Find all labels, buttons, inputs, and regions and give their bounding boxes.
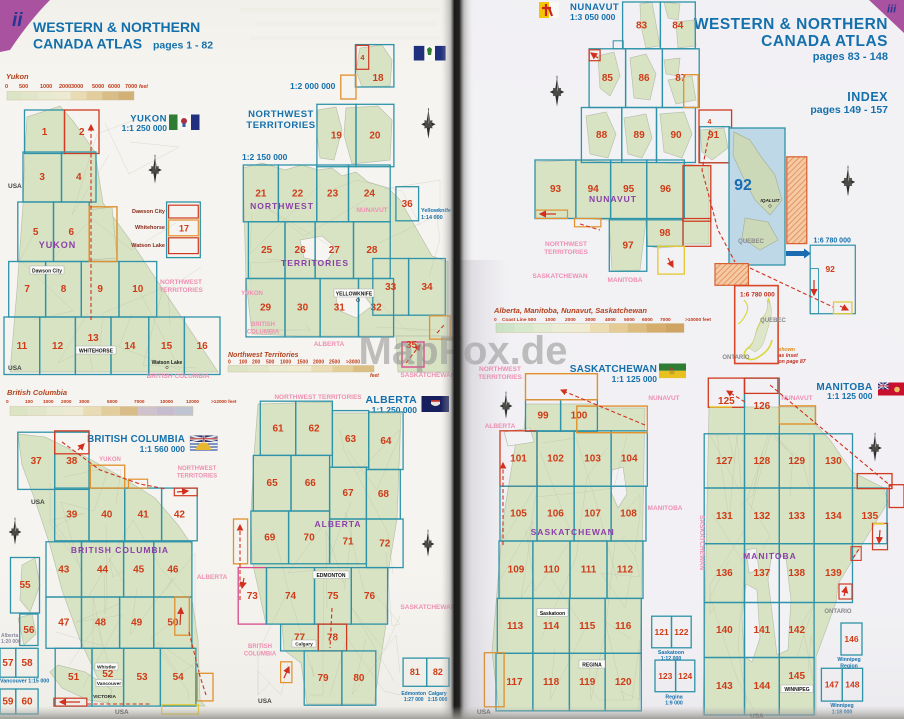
svg-text:ii: ii [12, 10, 23, 31]
svg-text:ONTARIO: ONTARIO [722, 355, 750, 361]
svg-text:109: 109 [508, 565, 525, 576]
svg-text:147: 147 [825, 680, 839, 690]
svg-text:105: 105 [510, 509, 527, 520]
svg-text:NUNAVUT: NUNAVUT [648, 395, 679, 402]
svg-text:on page 87: on page 87 [779, 359, 807, 365]
svg-text:38: 38 [66, 456, 78, 467]
svg-text:2000: 2000 [565, 317, 576, 323]
svg-text:MANITOBA: MANITOBA [648, 505, 683, 512]
svg-text:500: 500 [528, 317, 536, 323]
svg-text:134: 134 [825, 511, 842, 522]
svg-text:200: 200 [252, 360, 261, 366]
svg-text:76: 76 [364, 591, 376, 602]
svg-text:3: 3 [39, 172, 45, 183]
svg-text:MANITOBA: MANITOBA [743, 551, 797, 561]
svg-text:56: 56 [23, 625, 35, 636]
svg-text:74: 74 [285, 591, 297, 602]
svg-text:81: 81 [410, 667, 420, 677]
svg-text:5000: 5000 [92, 84, 104, 90]
svg-text:19: 19 [331, 131, 343, 142]
svg-text:2500: 2500 [329, 360, 340, 366]
svg-text:2000: 2000 [59, 84, 71, 90]
svg-text:72: 72 [379, 538, 391, 549]
svg-text:122: 122 [674, 627, 688, 637]
svg-text:Region: Region [840, 664, 858, 670]
svg-text:1:1 125 000: 1:1 125 000 [612, 374, 658, 384]
svg-text:69: 69 [264, 532, 276, 543]
svg-text:140: 140 [716, 625, 733, 636]
svg-text:QUEBEC: QUEBEC [738, 239, 764, 245]
svg-text:IQALUIT: IQALUIT [760, 198, 780, 204]
svg-text:39: 39 [66, 510, 78, 521]
svg-text:89: 89 [634, 130, 646, 141]
svg-text:29: 29 [260, 303, 272, 314]
svg-text:21: 21 [255, 188, 267, 199]
svg-text:57: 57 [2, 658, 14, 669]
svg-text:62: 62 [308, 423, 320, 434]
svg-text:2000: 2000 [313, 360, 324, 366]
svg-text:6000: 6000 [642, 317, 653, 323]
svg-text:100: 100 [239, 360, 248, 366]
svg-text:7000: 7000 [134, 399, 145, 404]
svg-text:3000: 3000 [71, 84, 83, 90]
svg-text:4: 4 [707, 119, 711, 126]
svg-text:133: 133 [788, 511, 805, 522]
svg-text:44: 44 [97, 564, 109, 575]
svg-text:NORTHWEST: NORTHWEST [178, 466, 217, 472]
svg-text:125: 125 [718, 396, 735, 407]
svg-text:50: 50 [167, 618, 179, 629]
svg-text:42: 42 [174, 510, 186, 521]
svg-text:131: 131 [716, 511, 733, 522]
svg-text:4000: 4000 [605, 317, 616, 323]
svg-text:SASKATCHEWAN: SASKATCHEWAN [531, 527, 615, 537]
svg-text:MANITOBA: MANITOBA [608, 277, 643, 284]
svg-text:15: 15 [161, 341, 173, 352]
svg-text:BRITISH COLUMBIA: BRITISH COLUMBIA [71, 545, 169, 555]
svg-text:130: 130 [825, 456, 842, 467]
svg-text:EDMONTON: EDMONTON [316, 573, 345, 579]
svg-text:67: 67 [342, 488, 354, 499]
svg-text:64: 64 [380, 436, 392, 447]
svg-text:TERRITORIES: TERRITORIES [246, 120, 315, 131]
svg-text:86: 86 [638, 73, 650, 84]
svg-text:75: 75 [327, 591, 339, 602]
svg-text:90: 90 [670, 130, 682, 141]
svg-text:1:1 560 000: 1:1 560 000 [140, 444, 186, 454]
svg-text:TERRITORIES: TERRITORIES [159, 287, 203, 294]
svg-text:31: 31 [334, 303, 346, 314]
svg-text:128: 128 [754, 456, 771, 467]
svg-text:6: 6 [69, 227, 75, 238]
svg-text:114: 114 [543, 621, 560, 632]
svg-text:65: 65 [267, 478, 279, 489]
svg-text:1:1 250 000: 1:1 250 000 [122, 123, 168, 133]
svg-text:137: 137 [754, 568, 771, 579]
svg-text:46: 46 [167, 564, 179, 575]
svg-text:NUNAVUT: NUNAVUT [589, 194, 637, 204]
svg-text:BRITISH COLUMBIA: BRITISH COLUMBIA [147, 373, 210, 380]
svg-text:Calgary: Calgary [295, 642, 313, 648]
svg-text:SASKATCHEWAN: SASKATCHEWAN [698, 515, 705, 570]
svg-text:Alberta, Manitoba, Nunavut, Sa: Alberta, Manitoba, Nunavut, Saskatchewan [493, 306, 647, 315]
svg-text:85: 85 [602, 73, 614, 84]
svg-text:26: 26 [295, 245, 307, 256]
svg-text:12000: 12000 [186, 399, 199, 404]
svg-text:88: 88 [596, 130, 608, 141]
svg-text:63: 63 [345, 434, 357, 445]
svg-text:127: 127 [716, 456, 733, 467]
svg-text:1:2 000 000: 1:2 000 000 [290, 81, 336, 91]
svg-text:USA: USA [8, 365, 22, 372]
svg-text:TERRITORIES: TERRITORIES [544, 249, 588, 256]
svg-text:NORTHWEST: NORTHWEST [545, 241, 587, 248]
svg-text:43: 43 [58, 564, 70, 575]
svg-text:98: 98 [659, 228, 671, 239]
svg-text:7000: 7000 [660, 317, 671, 323]
svg-text:132: 132 [754, 511, 771, 522]
svg-text:3000: 3000 [585, 317, 596, 323]
svg-text:48: 48 [95, 618, 107, 629]
svg-text:9: 9 [97, 284, 103, 295]
svg-text:143: 143 [716, 681, 733, 692]
svg-text:TERRITORIES: TERRITORIES [281, 258, 349, 268]
svg-text:108: 108 [620, 509, 637, 520]
svg-text:Vancouver 1:15 000: Vancouver 1:15 000 [0, 679, 49, 685]
svg-text:144: 144 [754, 681, 771, 692]
svg-text:28: 28 [366, 245, 378, 256]
svg-text:Dawson City: Dawson City [132, 209, 166, 215]
svg-text:NORTHWEST: NORTHWEST [248, 109, 314, 120]
svg-text:83: 83 [636, 20, 648, 31]
svg-text:NORTHWEST: NORTHWEST [160, 279, 202, 286]
svg-text:VICTORIA: VICTORIA [93, 694, 116, 700]
svg-text:27: 27 [329, 245, 341, 256]
svg-text:12: 12 [52, 341, 64, 352]
svg-text:3000: 3000 [79, 399, 90, 404]
svg-text:142: 142 [788, 625, 805, 636]
svg-text:126: 126 [754, 401, 771, 412]
svg-text:37: 37 [31, 456, 43, 467]
svg-text:1000: 1000 [40, 84, 52, 90]
svg-text:103: 103 [584, 454, 601, 465]
svg-text:CANADA ATLAS: CANADA ATLAS [761, 33, 888, 50]
svg-text:BRITISH: BRITISH [251, 322, 275, 328]
svg-text:18: 18 [372, 73, 384, 84]
svg-text:5: 5 [33, 227, 39, 238]
svg-text:33: 33 [385, 282, 397, 293]
svg-text:YUKON: YUKON [99, 457, 121, 463]
svg-text:0: 0 [6, 399, 9, 404]
svg-text:70: 70 [304, 532, 316, 543]
svg-text:78: 78 [327, 633, 339, 644]
svg-text:102: 102 [547, 454, 564, 465]
svg-text:WINNIPEG: WINNIPEG [784, 687, 809, 693]
svg-text:feet: feet [139, 84, 148, 90]
svg-text:1000: 1000 [43, 399, 54, 404]
svg-text:Whitehorse: Whitehorse [135, 225, 165, 231]
svg-text:1:2 150 000: 1:2 150 000 [242, 152, 288, 162]
svg-text:110: 110 [543, 565, 560, 576]
svg-text:49: 49 [131, 618, 143, 629]
svg-text:66: 66 [305, 478, 317, 489]
svg-text:100: 100 [571, 411, 588, 422]
svg-text:55: 55 [19, 580, 31, 591]
svg-text:1:27 000: 1:27 000 [404, 697, 424, 703]
svg-text:USA: USA [8, 183, 22, 190]
svg-text:92: 92 [825, 264, 835, 274]
svg-text:1000: 1000 [280, 360, 291, 366]
svg-text:500: 500 [266, 360, 275, 366]
svg-text:41: 41 [138, 510, 150, 521]
svg-text:61: 61 [272, 423, 284, 434]
svg-text:60: 60 [21, 697, 33, 708]
svg-text:YUKON: YUKON [241, 291, 263, 297]
svg-text:10000: 10000 [160, 399, 173, 404]
svg-text:Watson Lake: Watson Lake [131, 243, 165, 249]
svg-text:USA: USA [258, 698, 272, 705]
svg-text:500: 500 [19, 84, 28, 90]
svg-text:141: 141 [754, 625, 771, 636]
svg-text:0: 0 [228, 360, 231, 366]
svg-text:pages 83 - 148: pages 83 - 148 [813, 51, 888, 63]
svg-text:1:3 050 000: 1:3 050 000 [570, 12, 616, 22]
svg-text:1:1 125 000: 1:1 125 000 [827, 391, 873, 401]
svg-text:121: 121 [655, 627, 669, 637]
svg-text:101: 101 [510, 454, 527, 465]
svg-text:1000: 1000 [545, 317, 556, 323]
svg-text:119: 119 [579, 677, 596, 688]
svg-text:34: 34 [421, 282, 433, 293]
svg-text:51: 51 [68, 672, 80, 683]
svg-text:7000: 7000 [125, 84, 137, 90]
svg-text:30: 30 [297, 303, 309, 314]
svg-text:pages 1 - 82: pages 1 - 82 [153, 40, 213, 52]
svg-text:129: 129 [788, 456, 805, 467]
svg-text:pages 149 - 157: pages 149 - 157 [810, 104, 888, 116]
svg-text:145: 145 [788, 671, 805, 682]
svg-text:BRITISH: BRITISH [248, 644, 272, 650]
svg-text:11: 11 [17, 341, 28, 352]
svg-text:6000: 6000 [108, 84, 120, 90]
svg-text:146: 146 [844, 634, 858, 644]
svg-text:116: 116 [615, 621, 632, 632]
svg-text:5000: 5000 [624, 317, 635, 323]
svg-text:92: 92 [734, 177, 752, 194]
svg-text:1:12 000: 1:12 000 [661, 656, 682, 662]
svg-text:2: 2 [79, 127, 85, 138]
svg-text:>12000 feet: >12000 feet [211, 399, 237, 404]
svg-text:22: 22 [292, 188, 304, 199]
svg-text:1: 1 [42, 127, 48, 138]
svg-text:139: 139 [825, 568, 842, 579]
svg-text:INDEX: INDEX [847, 90, 888, 104]
svg-text:8: 8 [61, 284, 67, 295]
svg-text:80: 80 [353, 673, 365, 684]
svg-text:0: 0 [5, 84, 8, 90]
svg-text:58: 58 [21, 658, 33, 669]
svg-text:24: 24 [364, 188, 376, 199]
svg-text:REGINA: REGINA [582, 663, 602, 669]
svg-text:17: 17 [179, 224, 189, 234]
svg-text:45: 45 [133, 564, 145, 575]
svg-text:93: 93 [550, 184, 562, 195]
svg-text:115: 115 [579, 621, 596, 632]
svg-text:1:9 000: 1:9 000 [665, 701, 683, 707]
svg-text:111: 111 [581, 565, 597, 576]
svg-text:52: 52 [102, 669, 114, 680]
svg-text:123: 123 [658, 671, 672, 681]
svg-text:73: 73 [247, 591, 259, 602]
svg-text:SASKATCHEWAN: SASKATCHEWAN [532, 273, 587, 280]
svg-text:Northwest Territories: Northwest Territories [228, 352, 299, 359]
svg-text:ALBERTA: ALBERTA [197, 574, 228, 581]
svg-text:36: 36 [402, 199, 414, 210]
svg-text:117: 117 [506, 677, 523, 688]
svg-text:68: 68 [378, 489, 390, 500]
svg-text:1:6 780 000: 1:6 780 000 [814, 238, 851, 245]
svg-text:NORTHWEST TERRITORIES: NORTHWEST TERRITORIES [274, 394, 362, 401]
svg-text:Winnipeg: Winnipeg [837, 657, 860, 663]
svg-text:British Columbia: British Columbia [7, 388, 67, 397]
svg-text:WESTERN & NORTHERN: WESTERN & NORTHERN [694, 16, 888, 33]
svg-text:Vancouver: Vancouver [97, 681, 121, 687]
svg-text:10: 10 [132, 284, 144, 295]
svg-text:71: 71 [342, 536, 354, 547]
svg-text:Watson Lake: Watson Lake [152, 360, 183, 366]
svg-text:QUEBEC: QUEBEC [760, 318, 786, 324]
svg-text:feet: feet [370, 373, 379, 379]
svg-text:16: 16 [197, 341, 209, 352]
svg-text:40: 40 [101, 510, 113, 521]
svg-text:CANADA ATLAS: CANADA ATLAS [33, 36, 142, 52]
svg-text:97: 97 [622, 241, 634, 252]
svg-text:TERRITORIES: TERRITORIES [177, 474, 217, 480]
svg-text:Saskatoon: Saskatoon [540, 611, 565, 617]
svg-text:5000: 5000 [107, 399, 118, 404]
svg-text:20: 20 [369, 131, 381, 142]
svg-text:96: 96 [660, 184, 672, 195]
svg-text:100: 100 [25, 399, 33, 404]
svg-text:COLUMBIA: COLUMBIA [247, 330, 280, 336]
svg-text:113: 113 [507, 621, 524, 632]
svg-text:13: 13 [88, 333, 100, 344]
svg-text:YELLOWKNIFE: YELLOWKNIFE [336, 292, 373, 298]
svg-text:59: 59 [2, 697, 14, 708]
svg-text:COLUMBIA: COLUMBIA [244, 652, 277, 658]
svg-text:135: 135 [861, 511, 878, 522]
svg-text:138: 138 [788, 568, 805, 579]
svg-text:99: 99 [537, 411, 549, 422]
svg-text:23: 23 [327, 188, 339, 199]
svg-text:1:6 780 000: 1:6 780 000 [740, 292, 775, 299]
svg-text:25: 25 [261, 245, 273, 256]
svg-text:ONTARIO: ONTARIO [824, 609, 852, 615]
svg-text:148: 148 [845, 680, 859, 690]
svg-text:54: 54 [173, 672, 185, 683]
svg-text:14: 14 [124, 341, 136, 352]
svg-text:118: 118 [543, 677, 560, 688]
svg-text:1500: 1500 [297, 360, 308, 366]
svg-text:1:14 000: 1:14 000 [421, 215, 443, 221]
svg-text:120: 120 [615, 677, 632, 688]
svg-text:124: 124 [678, 671, 692, 681]
svg-text:1:20 000: 1:20 000 [1, 639, 21, 645]
svg-text:NUNAVUT: NUNAVUT [356, 207, 387, 214]
svg-text:53: 53 [136, 672, 148, 683]
svg-text:Yukon: Yukon [6, 72, 29, 81]
svg-text:WHITEHORSE: WHITEHORSE [79, 349, 114, 355]
svg-text:112: 112 [617, 565, 634, 576]
svg-text:7: 7 [24, 284, 30, 295]
svg-text:2000: 2000 [61, 399, 72, 404]
svg-text:WESTERN & NORTHERN: WESTERN & NORTHERN [33, 19, 200, 35]
svg-text:104: 104 [621, 454, 638, 465]
svg-text:106: 106 [547, 509, 564, 520]
svg-text:47: 47 [58, 618, 70, 629]
svg-text:NORTHWEST: NORTHWEST [250, 201, 314, 211]
svg-text:YUKON: YUKON [39, 240, 77, 250]
svg-text:4: 4 [76, 172, 82, 183]
svg-text:79: 79 [317, 673, 329, 684]
svg-text:ALBERTA: ALBERTA [315, 519, 362, 529]
svg-text:iii: iii [887, 4, 897, 16]
svg-text:Whistler: Whistler [97, 665, 116, 671]
svg-text:136: 136 [716, 568, 733, 579]
svg-text:84: 84 [672, 20, 684, 31]
svg-text:Dawson City: Dawson City [32, 269, 62, 275]
svg-text:ALBERTA: ALBERTA [314, 341, 345, 348]
svg-text:USA: USA [31, 499, 45, 506]
svg-text:>10000 feet: >10000 feet [685, 317, 711, 323]
svg-text:107: 107 [584, 509, 601, 520]
